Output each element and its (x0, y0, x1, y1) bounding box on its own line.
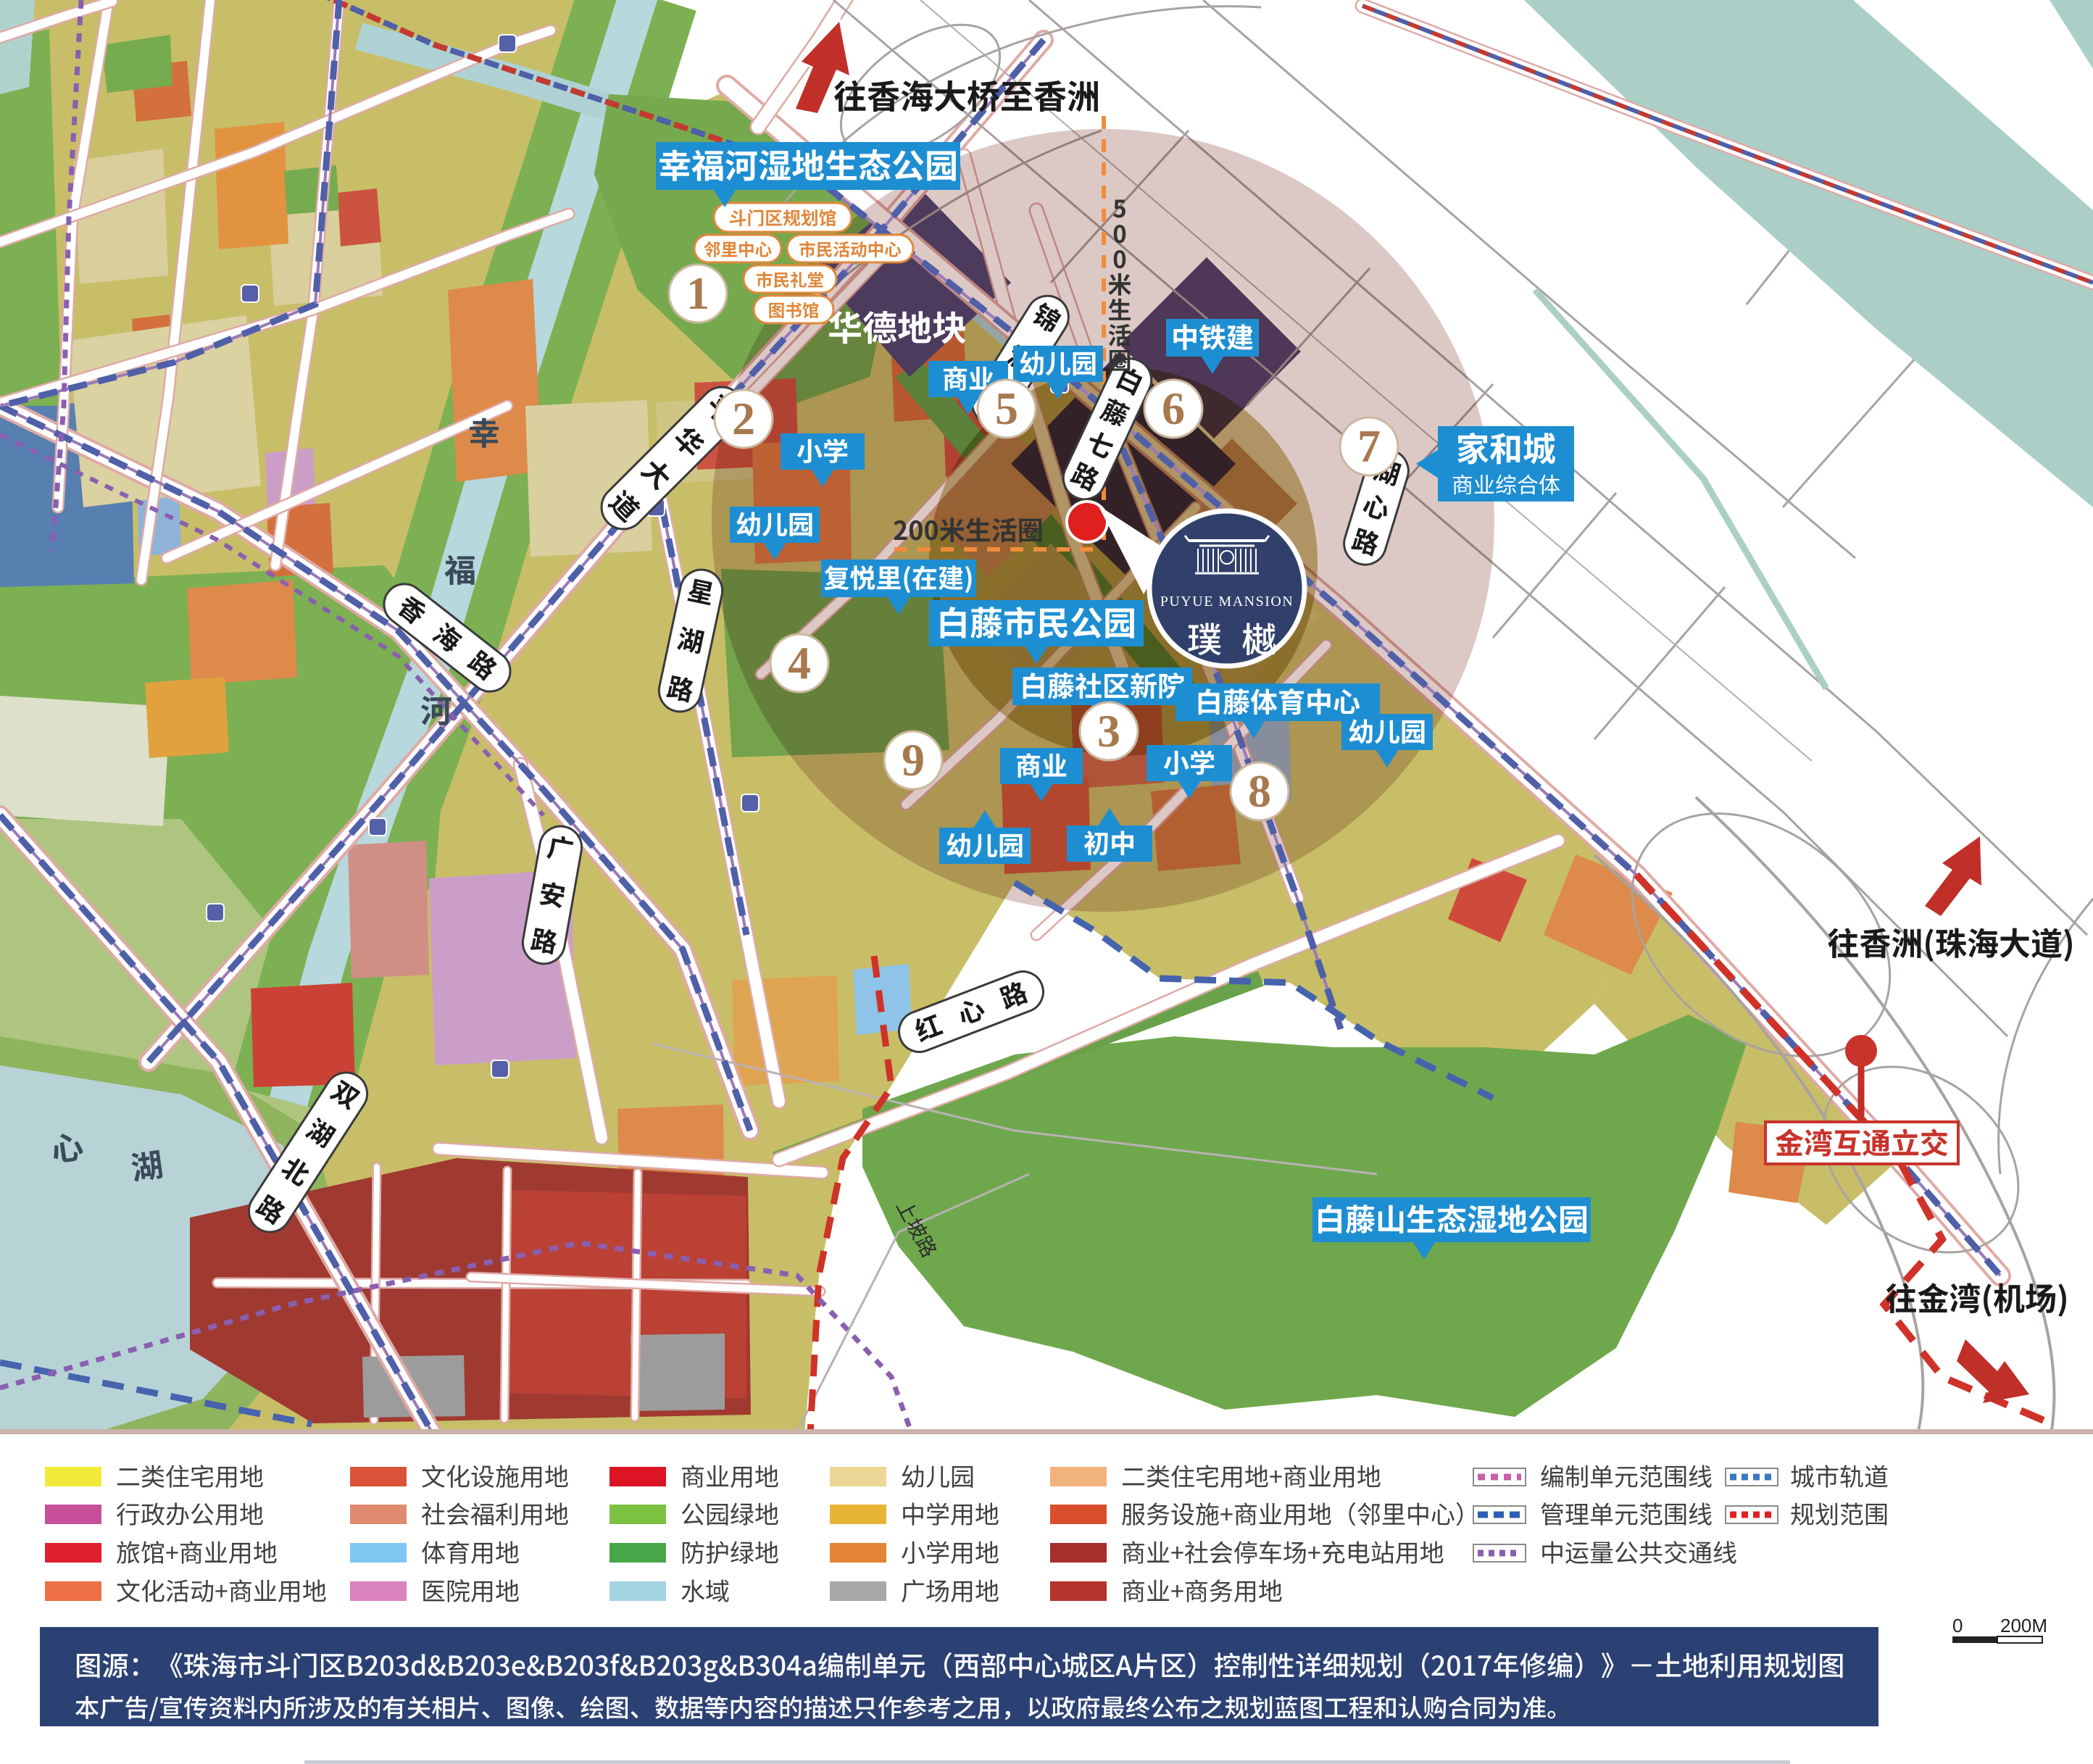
svg-text:5: 5 (995, 383, 1018, 434)
svg-text:200M: 200M (2000, 1615, 2047, 1636)
svg-text:7: 7 (1357, 420, 1381, 472)
svg-text:2: 2 (732, 393, 755, 444)
svg-text:6: 6 (1162, 383, 1185, 434)
svg-text:PUYUE MANSION: PUYUE MANSION (1160, 594, 1294, 610)
svg-text:0: 0 (1952, 1615, 1963, 1636)
svg-text:9: 9 (902, 734, 925, 786)
svg-text:4: 4 (788, 637, 811, 688)
svg-text:8: 8 (1248, 765, 1271, 817)
svg-text:3: 3 (1097, 705, 1120, 757)
svg-text:1: 1 (686, 267, 710, 319)
